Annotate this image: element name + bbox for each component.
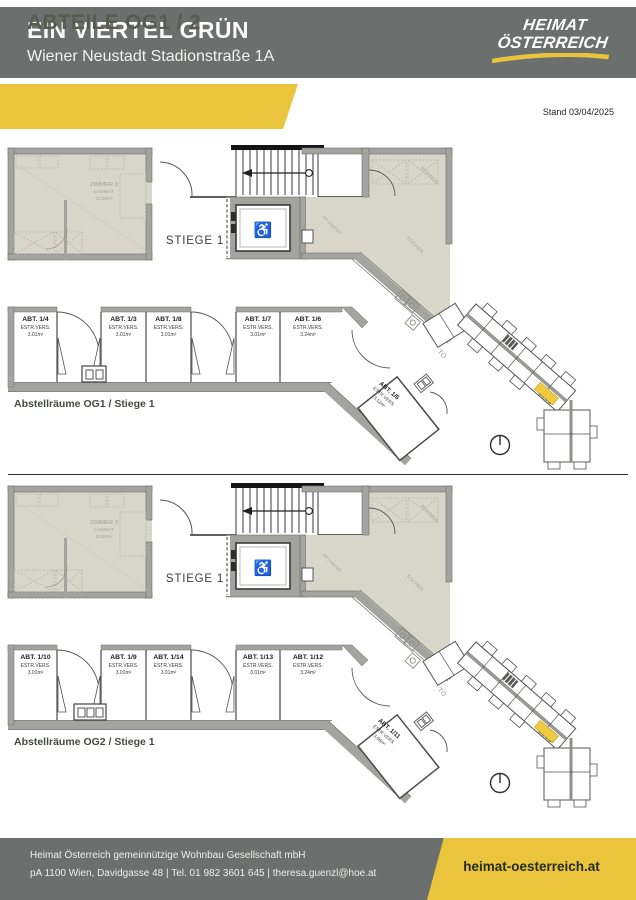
svg-text:ESTR.VERS.: ESTR.VERS. [243, 663, 273, 669]
right-apartment: WOHNEN KOCHEN AR LAMINAT [300, 486, 455, 681]
right-apartment: WOHNEN KOCHEN AR LAMINAT [300, 148, 455, 343]
svg-text:ESTR.VERS.: ESTR.VERS. [293, 325, 323, 331]
plan-caption: Abstellräume OG2 / Stiege 1 [14, 736, 155, 748]
footer-website-panel: heimat-oesterreich.at [427, 838, 636, 900]
svg-text:12.50m²: 12.50m² [96, 534, 113, 539]
svg-text:3.01m²: 3.01m² [250, 332, 266, 338]
compartment-labels: ABT. 1/4 ESTR.VERS. 3.01m² ABT. 1/3 ESTR… [21, 316, 323, 338]
corridor-door [160, 500, 362, 535]
svg-text:ESTR.VERS.: ESTR.VERS. [154, 663, 184, 669]
key-plan-lower-wing [537, 738, 597, 807]
page: EIN VIERTEL GRÜN Wiener Neustadt Stadion… [0, 0, 636, 900]
storage-block: ABT. 1/10 ESTR.VERS. 3.01m² ABT. 1/9 EST… [8, 645, 448, 800]
svg-text:12.50m²: 12.50m² [96, 196, 113, 201]
wheelchair-icon: ♿ [254, 559, 273, 577]
section-banner [0, 84, 298, 129]
svg-text:3.01m²: 3.01m² [161, 332, 177, 338]
plan-caption: Abstellräume OG1 / Stiege 1 [14, 398, 155, 410]
floor-plan-og2-drawing: ZIMMER 3 LAMINAT 12.50m² [0, 478, 636, 812]
faint-top-label: TO [436, 687, 448, 699]
compartment-label: ABT. 1/10 [20, 654, 50, 661]
svg-text:ESTR.VERS.: ESTR.VERS. [21, 663, 51, 669]
svg-text:3.24m²: 3.24m² [300, 332, 316, 338]
diagonal-compartment: ABT. 1/11 ESTR.VERS. 3.08m² [358, 712, 447, 798]
compartment-label: ABT. 1/6 [295, 316, 322, 323]
svg-text:ESTR.VERS.: ESTR.VERS. [293, 663, 323, 669]
logo-swoosh-icon [489, 53, 612, 63]
compartment-doors [57, 312, 390, 368]
storage-block: ABT. 1/4 ESTR.VERS. 3.01m² ABT. 1/3 ESTR… [8, 307, 448, 462]
compartment-label: ABT. 1/14 [153, 654, 183, 661]
page-subtitle: Wiener Neustadt Stadionstraße 1A [27, 48, 274, 66]
footer-contact: pA 1100 Wien, Davidgasse 48 | Tel. 01 98… [30, 868, 376, 879]
apartment-room: ZIMMER 3 LAMINAT 12.50m² [8, 486, 152, 598]
compartment-label: ABT. 1/13 [243, 654, 273, 661]
svg-text:ESTR.VERS.: ESTR.VERS. [154, 325, 184, 331]
svg-text:3.01m²: 3.01m² [28, 670, 44, 676]
diagonal-compartment: ABT. 1/5 ESTR.VERS. 3.12m² [358, 374, 447, 460]
svg-text:3.01m²: 3.01m² [28, 332, 44, 338]
floor-plan-og2: ZIMMER 3 LAMINAT 12.50m² [0, 478, 636, 812]
floor-plan-og1: ZIMMER 3 LAMINAT 12.50m² [0, 140, 636, 474]
heimat-oesterreich-logo: HEIMAT ÖSTERREICH [485, 18, 621, 63]
svg-text:ESTR.VERS.: ESTR.VERS. [243, 325, 273, 331]
stiege-label: STIEGE 1 [166, 573, 224, 585]
svg-text:LAMINAT: LAMINAT [94, 527, 114, 532]
svg-text:ZIMMER 3: ZIMMER 3 [90, 520, 118, 526]
apartment-room: ZIMMER 3 LAMINAT 12.50m² [8, 148, 152, 260]
footer-bar: Heimat Österreich gemeinnützige Wohnbau … [0, 838, 636, 900]
north-compass-icon [491, 774, 510, 793]
section-banner-label: ABTEILE OG1 / 2 [27, 0, 201, 45]
elevator: ♿ [224, 535, 300, 597]
svg-text:ESTR.VERS.: ESTR.VERS. [21, 325, 51, 331]
floor-plan-og1-drawing: ZIMMER 3 LAMINAT 12.50m² [0, 140, 636, 474]
compartment-label: ABT. 1/8 [155, 316, 182, 323]
compartment-doors [57, 650, 390, 706]
compartment-label: ABT. 1/9 [110, 654, 137, 661]
elevator: ♿ [224, 197, 300, 259]
wheelchair-icon: ♿ [254, 221, 273, 239]
svg-text:3.24m²: 3.24m² [300, 670, 316, 676]
svg-text:3.01m²: 3.01m² [161, 670, 177, 676]
stiege-label: STIEGE 1 [166, 235, 224, 247]
svg-text:3.01m²: 3.01m² [116, 332, 132, 338]
plan-divider [8, 474, 628, 475]
compartment-label: ABT. 1/3 [110, 316, 137, 323]
compartment-label: ABT. 1/12 [293, 654, 323, 661]
key-plan-lower-wing [537, 400, 597, 469]
compartment-labels: ABT. 1/10 ESTR.VERS. 3.01m² ABT. 1/9 EST… [20, 654, 323, 676]
footer-company: Heimat Österreich gemeinnützige Wohnbau … [30, 850, 306, 861]
svg-text:3.01m²: 3.01m² [250, 670, 266, 676]
svg-text:ESTR.VERS.: ESTR.VERS. [109, 325, 139, 331]
compartment-label: ABT. 1/7 [245, 316, 272, 323]
compartment-label: ABT. 1/4 [22, 316, 49, 323]
logo-line1: HEIMAT [489, 18, 621, 35]
footer-website-link[interactable]: heimat-oesterreich.at [427, 859, 636, 874]
north-compass-icon [491, 436, 510, 455]
date-stamp: Stand 03/04/2025 [543, 107, 614, 117]
logo-line2: ÖSTERREICH [486, 35, 618, 52]
svg-text:LAMINAT: LAMINAT [94, 189, 114, 194]
svg-text:ZIMMER 3: ZIMMER 3 [90, 182, 118, 188]
svg-text:3.01m²: 3.01m² [116, 670, 132, 676]
corridor-door [160, 162, 362, 197]
faint-top-label: TO [436, 349, 448, 361]
svg-text:ESTR.VERS.: ESTR.VERS. [109, 663, 139, 669]
